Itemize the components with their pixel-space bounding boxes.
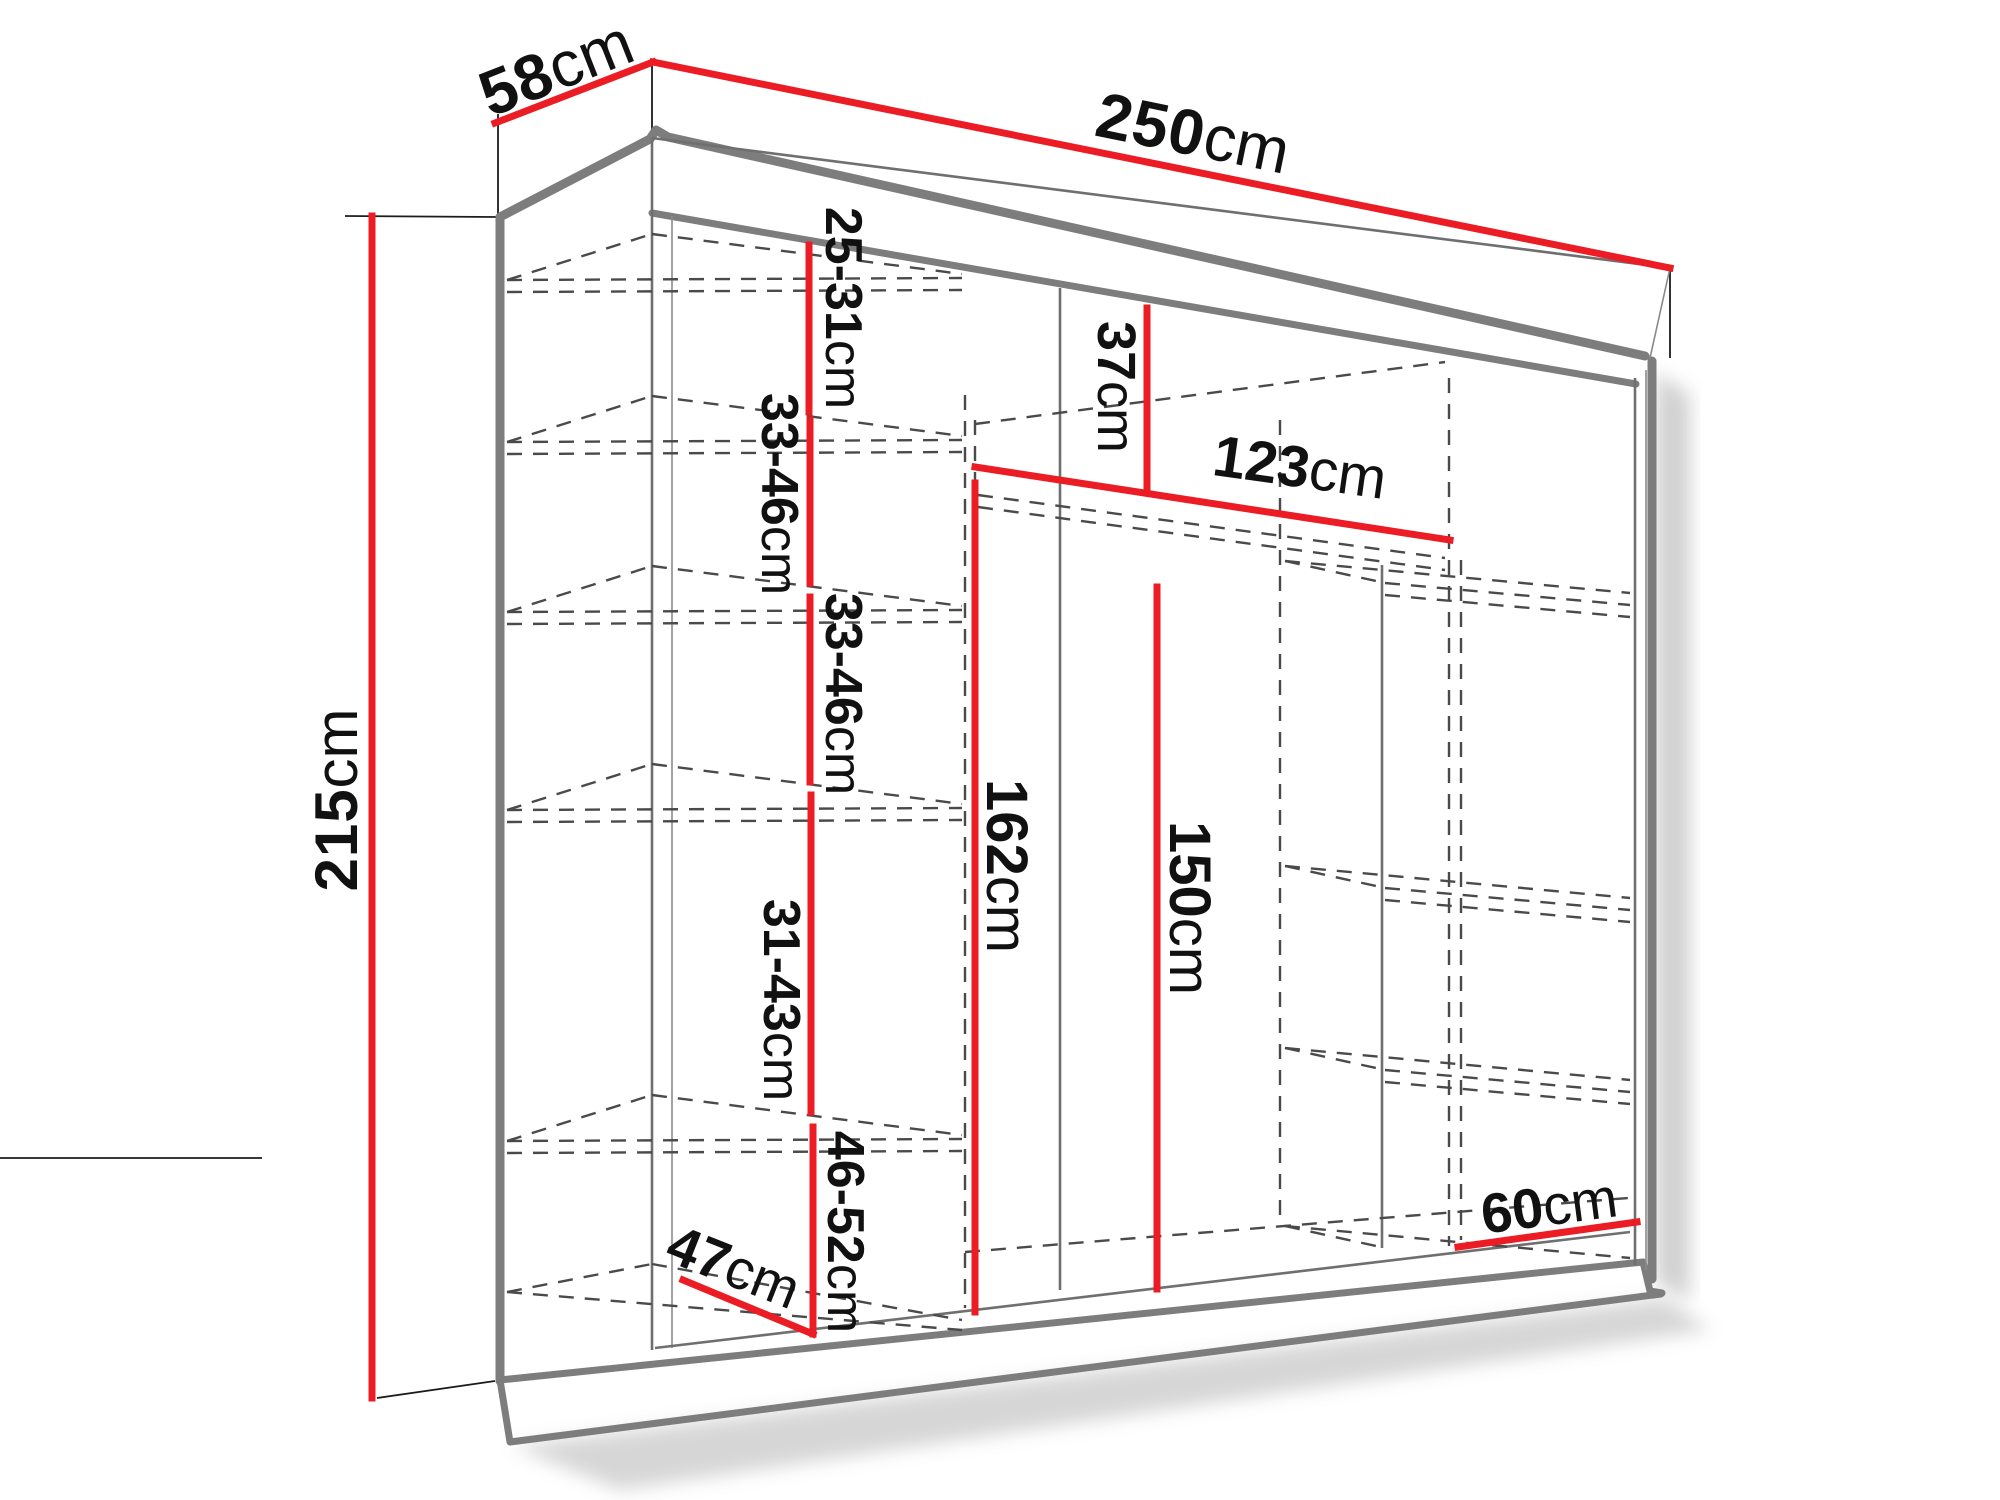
hanging-rail-2	[978, 507, 1445, 570]
dim-label-top-gap: 37cm	[1086, 321, 1146, 453]
right-shelves	[1285, 561, 1630, 1258]
dim-label-right-width: 60cm	[1477, 1165, 1621, 1245]
dim-label-gap1: 25-31cm	[814, 207, 872, 409]
dim-label-rail-height: 162cm	[975, 779, 1040, 953]
dimension-lines	[372, 62, 1670, 1398]
dim-label-gap3: 33-46cm	[814, 593, 872, 795]
left-shelves	[507, 234, 962, 1330]
wardrobe-dimension-diagram: 58cm 250cm 215cm 25-31cm 33-46cm 33-46cm…	[0, 0, 2000, 1500]
diagram-canvas: 58cm 250cm 215cm 25-31cm 33-46cm 33-46cm…	[0, 0, 2000, 1500]
dim-label-gap4: 31-43cm	[752, 899, 810, 1101]
room-reference-lines	[0, 216, 497, 1398]
left-shelf-2	[507, 396, 962, 454]
interior-dashed-lines	[965, 362, 1628, 1312]
dim-label-height: 215cm	[303, 708, 370, 891]
left-shelf-1	[507, 234, 962, 292]
right-shelf-3	[1285, 1048, 1630, 1104]
left-shelf-5	[507, 1095, 962, 1153]
right-shelf-1	[1285, 561, 1630, 617]
extension-lines	[498, 62, 1670, 358]
dim-label-rail-width: 123cm	[1209, 423, 1390, 512]
left-shelf-4	[507, 764, 962, 822]
dim-label-gap2: 33-46cm	[750, 393, 808, 595]
dim-label-depth: 58cm	[469, 5, 643, 130]
left-shelf-3	[507, 566, 962, 624]
dim-label-gap5: 46-52cm	[816, 1131, 874, 1333]
right-shelf-2	[1285, 866, 1630, 922]
dim-label-right-height: 150cm	[1158, 821, 1223, 995]
shadow	[512, 372, 1710, 1490]
